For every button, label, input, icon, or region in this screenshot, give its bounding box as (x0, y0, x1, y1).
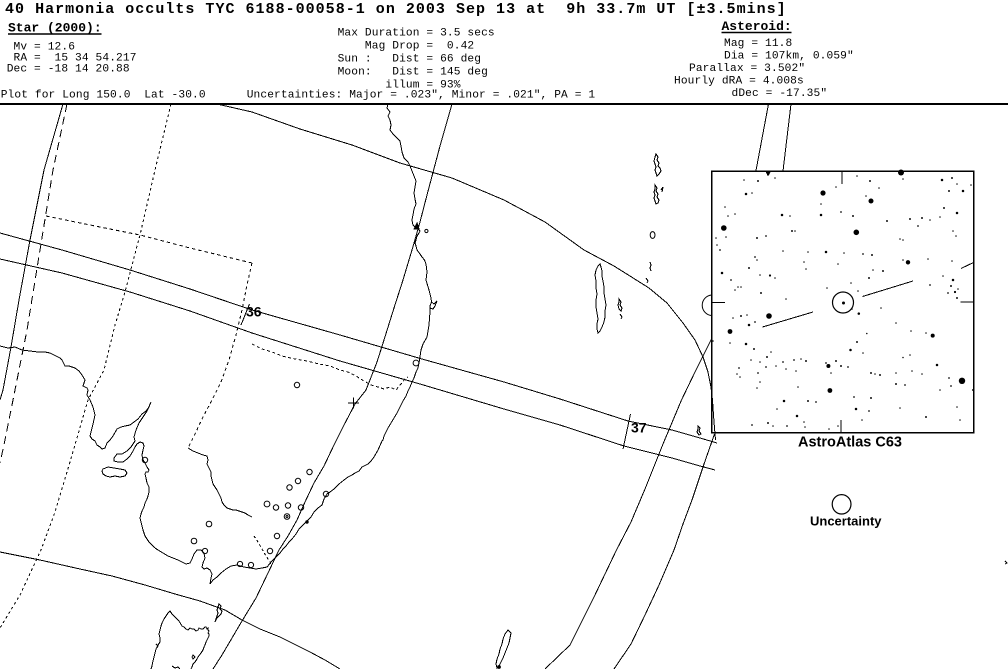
svg-text:Uncertainty: Uncertainty (810, 514, 882, 529)
svg-text:37: 37 (631, 420, 647, 436)
svg-text:Mag Drop = 0.42: Mag Drop = 0.42 (338, 41, 475, 53)
svg-text:AstroAtlas C63: AstroAtlas C63 (798, 435, 902, 451)
svg-text:illum = 93%: illum = 93% (338, 80, 461, 92)
svg-text:Star (2000):: Star (2000): (8, 21, 102, 36)
svg-text:40 Harmonia occults TYC 6188-0: 40 Harmonia occults TYC 6188-00058-1 on … (5, 1, 787, 18)
svg-text:Moon: Dist = 145 deg: Moon: Dist = 145 deg (338, 67, 488, 79)
svg-text:Mag = 11.8: Mag = 11.8 (724, 38, 792, 50)
svg-text:Asteroid:: Asteroid: (722, 19, 792, 34)
svg-text:Plot for Long 150.0 Lat -30.0: Plot for Long 150.0 Lat -30.0 Uncertaint… (1, 90, 596, 102)
svg-text:Max Duration = 3.5 secs: Max Duration = 3.5 secs (338, 28, 495, 40)
svg-text:Sun : Dist = 66 deg: Sun : Dist = 66 deg (338, 54, 482, 66)
svg-text:Parallax = 3.502": Parallax = 3.502" (689, 63, 805, 75)
svg-text:dDec = -17.35": dDec = -17.35" (732, 88, 828, 100)
svg-text:Hourly dRA = 4.008s: Hourly dRA = 4.008s (674, 76, 804, 88)
svg-text:36: 36 (246, 304, 262, 320)
svg-text:Dia = 107km, 0.059": Dia = 107km, 0.059" (724, 51, 854, 63)
svg-text:Dec = -18 14 20.88: Dec = -18 14 20.88 (7, 64, 130, 76)
